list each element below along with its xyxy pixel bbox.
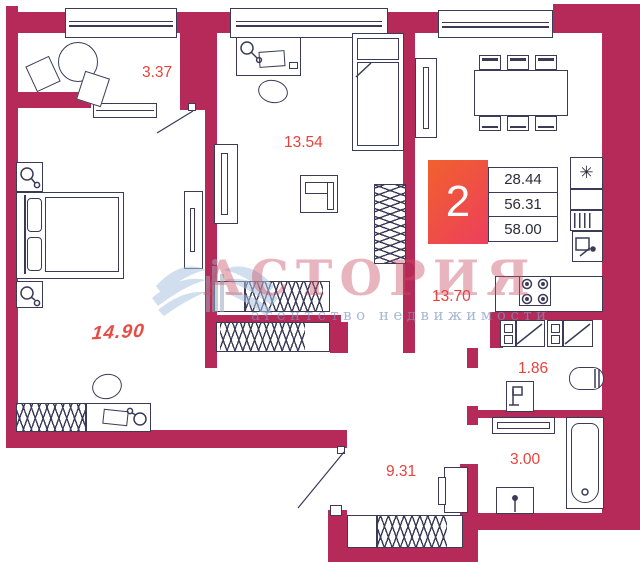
room-label-bathroom: 3.00	[510, 451, 540, 469]
laptop	[102, 409, 128, 427]
chair	[507, 55, 529, 70]
chair	[535, 55, 557, 70]
wall-hall-wc	[467, 348, 478, 368]
wall-hall-bottom	[328, 548, 478, 562]
window-balcony	[65, 8, 177, 38]
radiator	[415, 58, 437, 138]
tv-stand	[214, 144, 238, 224]
washing-machine	[500, 320, 545, 347]
wardrobe	[16, 403, 86, 432]
washbasin	[496, 487, 534, 514]
wall-bedroom-bottom	[6, 430, 347, 448]
desk-chair	[89, 371, 124, 403]
watermark-subtitle: агентство недвижимости	[251, 306, 551, 324]
pillow	[357, 38, 399, 60]
room-label-hallway: 9.31	[386, 463, 416, 481]
door-hinge	[330, 505, 342, 516]
shelf	[492, 417, 555, 434]
room-label-bedroom: 14.90	[91, 321, 146, 346]
desk	[236, 37, 301, 76]
chair	[507, 116, 529, 131]
wall-hall-wc	[467, 406, 478, 425]
blanket	[357, 62, 399, 146]
room-label-kitchen: 13.70	[432, 288, 471, 306]
kitchen-sink	[572, 231, 603, 262]
window-balcony-door-sill	[93, 103, 157, 118]
wall-right	[602, 4, 640, 530]
watermark-brand: АСТОРИЯ	[203, 254, 536, 303]
dining-table	[474, 70, 568, 116]
desk-item	[289, 62, 298, 69]
wardrobe	[347, 515, 463, 548]
room-label-living: 13.54	[284, 134, 323, 152]
balcony-door-swing	[157, 111, 193, 133]
area-living-value: 28.44	[489, 168, 557, 193]
laptop	[258, 50, 285, 68]
fridge: ✳	[570, 157, 603, 189]
area-full-value: 58.00	[489, 217, 557, 241]
wall-step	[330, 322, 348, 353]
stool	[256, 77, 290, 106]
wall-top	[388, 12, 438, 33]
desk	[86, 403, 151, 432]
chair	[25, 56, 60, 92]
toilet	[506, 381, 534, 412]
chair	[535, 116, 557, 131]
single-bed	[352, 33, 404, 151]
blanket	[45, 197, 119, 272]
room-label-balcony: 3.37	[142, 64, 172, 82]
bathtub	[566, 417, 604, 509]
nightstand	[16, 281, 43, 308]
coffee-table	[300, 175, 338, 213]
double-bed	[16, 192, 124, 279]
window-kitchen	[438, 10, 553, 38]
cabinet-door	[438, 477, 446, 505]
door-hinge	[337, 446, 345, 454]
door-hinge	[188, 103, 196, 111]
cabinet	[444, 467, 468, 513]
area-total-value: 56.31	[489, 193, 557, 218]
chair	[479, 55, 501, 70]
wall-bath-bottom	[478, 513, 640, 530]
pillow	[27, 237, 42, 271]
pillow	[27, 198, 42, 232]
water-heater	[569, 367, 604, 390]
fridge-freezer-symbol: ✳	[571, 158, 602, 188]
apartment-rooms-badge: 2	[428, 160, 488, 244]
floor-plan: ✳	[0, 0, 640, 562]
area-table: 28.44 56.31 58.00	[488, 167, 558, 242]
entrance-door-swing	[298, 452, 344, 508]
kitchen-cabinet	[570, 189, 603, 210]
wall-balcony-living	[180, 26, 217, 110]
wall-top	[6, 12, 65, 33]
washing-machine	[547, 320, 593, 347]
room-label-wc: 1.86	[518, 360, 548, 378]
kitchen-vent-unit	[570, 210, 603, 231]
nightstand	[16, 162, 43, 192]
chair	[479, 116, 501, 131]
